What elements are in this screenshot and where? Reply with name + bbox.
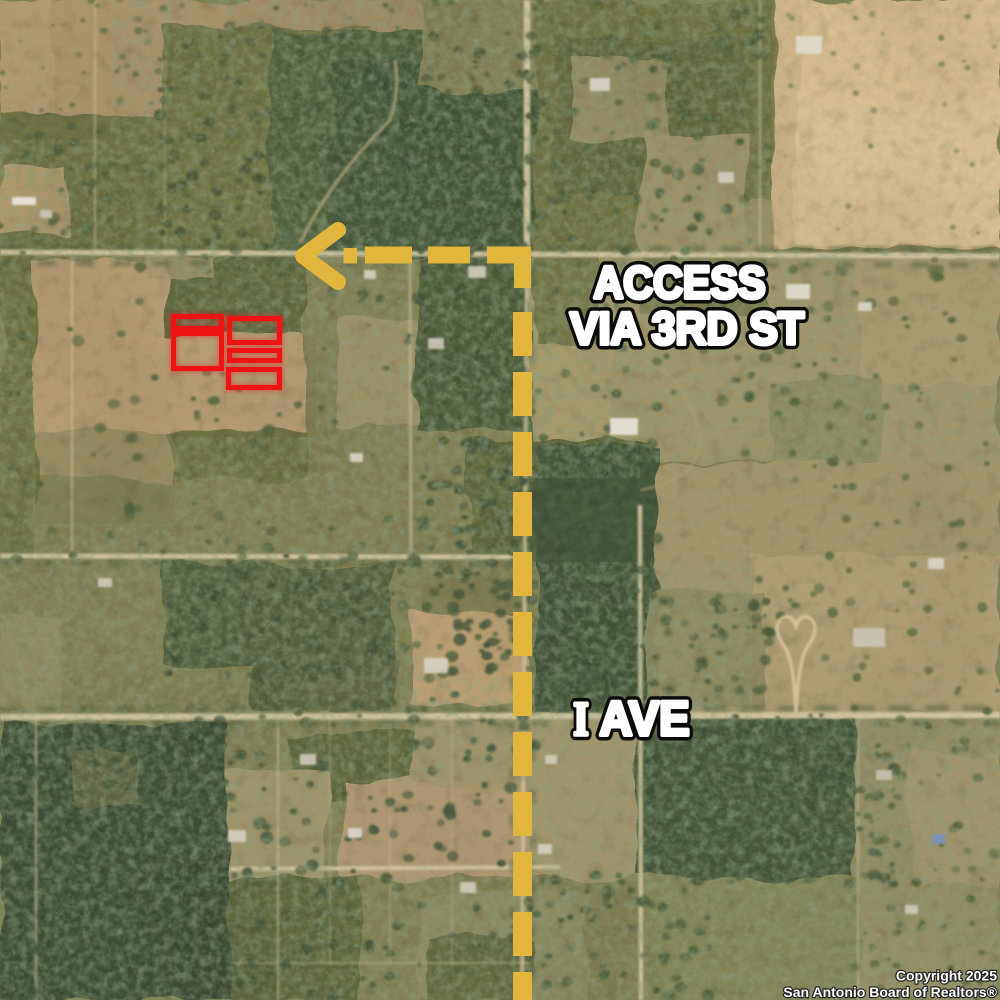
svg-text:AVE: AVE [600, 693, 690, 746]
svg-text:ACCESS: ACCESS [594, 257, 766, 308]
svg-text:VIA 3RD ST: VIA 3RD ST [570, 303, 804, 354]
svg-text:Copyright 2025: Copyright 2025 [896, 968, 997, 984]
svg-text:San Antonio Board of Realtors®: San Antonio Board of Realtors® [783, 984, 997, 1000]
svg-text:I: I [574, 693, 589, 746]
